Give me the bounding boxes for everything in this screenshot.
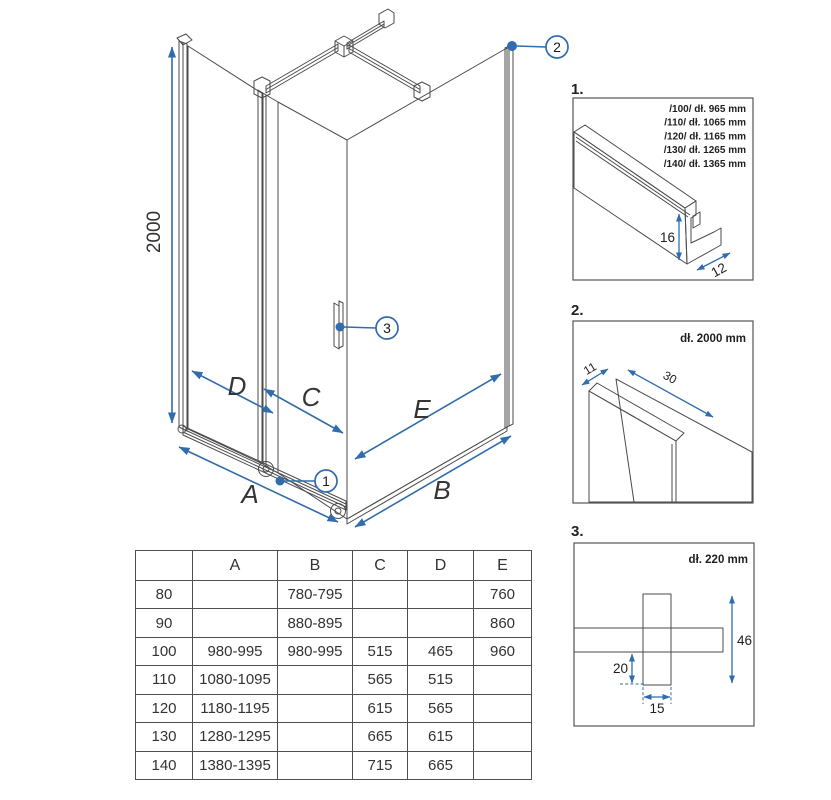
callout-1-dot [276, 477, 285, 486]
detail-1-size-line-3: /130/ dł. 1265 mm [664, 145, 746, 156]
table-header-row: A B C D E [136, 551, 532, 581]
dimension-height-2000: 2000 [144, 47, 172, 423]
table-cell [193, 581, 278, 609]
table-row: 90 880-895 860 [136, 609, 532, 637]
dimension-label-d: D [228, 371, 247, 401]
table-row: 100 980-995 980-995 515 465 960 [136, 637, 532, 665]
detail-2-length-label: dł. 2000 mm [680, 333, 746, 345]
table-cell: 1380-1395 [193, 751, 278, 779]
table-cell [474, 723, 532, 751]
dimension-label-c: C [302, 382, 321, 412]
dimension-label-e: E [413, 394, 431, 424]
table-row: 130 1280-1295 665 615 [136, 723, 532, 751]
detail-panel-2: 2. dł. 2000 mm 11 30 [571, 302, 753, 503]
table-cell: 100 [136, 637, 193, 665]
table-cell [278, 666, 353, 694]
table-cell: 980-995 [193, 637, 278, 665]
detail-1-number: 1. [571, 81, 584, 98]
table-cell [474, 751, 532, 779]
table-cell: 120 [136, 694, 193, 722]
callout-3-number: 3 [383, 320, 391, 336]
table-header-size [136, 551, 193, 581]
table-cell [474, 666, 532, 694]
table-cell: 760 [474, 581, 532, 609]
dimension-e: E [355, 374, 501, 459]
dimension-label-b: B [433, 475, 450, 505]
table-cell [474, 694, 532, 722]
detail-panel-3: 3. dł. 220 mm 46 20 15 [571, 523, 754, 726]
table-header-b: B [278, 551, 353, 581]
callout-1-number: 1 [322, 473, 330, 489]
detail-3-frame [574, 543, 754, 726]
table-cell: 1080-1095 [193, 666, 278, 694]
fixed-glass-strip [266, 95, 278, 473]
dimension-d: D [192, 371, 273, 413]
table-cell [278, 751, 353, 779]
right-wall-profile [505, 44, 513, 428]
right-bottom-profile [347, 427, 507, 524]
detail-3-dim-20-label: 20 [613, 661, 628, 676]
main-isometric-view: 2000 [144, 9, 568, 527]
table-cell: 780-795 [278, 581, 353, 609]
table-cell [193, 609, 278, 637]
table-cell: 140 [136, 751, 193, 779]
detail-1-size-line-2: /120/ dł. 1165 mm [664, 131, 746, 142]
table-header-a: A [193, 551, 278, 581]
callout-2-number: 2 [553, 39, 561, 55]
table-cell [278, 694, 353, 722]
table-row: 140 1380-1395 715 665 [136, 751, 532, 779]
table-cell: 565 [353, 666, 408, 694]
detail-3-number: 3. [571, 523, 584, 540]
table-cell: 1280-1295 [193, 723, 278, 751]
detail-1-size-line-0: /100/ dł. 965 mm [669, 104, 746, 115]
table-row: 120 1180-1195 615 565 [136, 694, 532, 722]
detail-3-length-label: dł. 220 mm [689, 554, 748, 566]
table-cell: 110 [136, 666, 193, 694]
table-cell: 515 [353, 637, 408, 665]
table-cell: 980-995 [278, 637, 353, 665]
wall-bracket [379, 9, 394, 28]
table-cell: 565 [408, 694, 474, 722]
table-cell: 80 [136, 581, 193, 609]
table-cell: 130 [136, 723, 193, 751]
bar-glass-clamp-right [414, 82, 430, 101]
table-cell [408, 609, 474, 637]
detail-3-dim-15-label: 15 [649, 701, 664, 716]
table-row: 80 780-795 760 [136, 581, 532, 609]
table-cell: 665 [353, 723, 408, 751]
dimension-b: B [355, 436, 511, 527]
table-cell: 880-895 [278, 609, 353, 637]
table-cell [408, 581, 474, 609]
size-dimension-table: A B C D E 80 780-795 760 90 880-895 860 … [135, 550, 532, 780]
roller-wheel [331, 504, 346, 519]
table-cell: 665 [408, 751, 474, 779]
table-cell [353, 581, 408, 609]
table-header-d: D [408, 551, 474, 581]
callout-2: 2 [507, 36, 568, 58]
table-cell [278, 723, 353, 751]
table-cell: 615 [353, 694, 408, 722]
detail-2-frame [573, 321, 753, 503]
table-cell: 90 [136, 609, 193, 637]
left-wall-profile [177, 34, 192, 433]
dimension-label-2000: 2000 [144, 211, 165, 253]
detail-1-size-line-1: /110/ dł. 1065 mm [664, 118, 746, 129]
table-row: 110 1080-1095 565 515 [136, 666, 532, 694]
table-cell: 715 [353, 751, 408, 779]
dimension-label-a: A [239, 479, 258, 509]
table-cell: 1180-1195 [193, 694, 278, 722]
table-cell: 960 [474, 637, 532, 665]
table-cell: 515 [408, 666, 474, 694]
detail-1-dim-16-label: 16 [660, 230, 675, 245]
detail-1-size-line-4: /140/ dł. 1365 mm [664, 159, 746, 170]
callout-3: 3 [336, 317, 399, 339]
table-header-e: E [474, 551, 532, 581]
table-cell [353, 609, 408, 637]
table-cell: 465 [408, 637, 474, 665]
detail-panel-1: 1. /100/ dł. 965 mm /110/ dł. 1065 mm /1… [571, 81, 753, 280]
callout-2-dot [507, 41, 517, 51]
callout-3-dot [336, 323, 345, 332]
top-support-bar [254, 9, 430, 101]
table-cell: 860 [474, 609, 532, 637]
table-cell: 615 [408, 723, 474, 751]
table-header-c: C [353, 551, 408, 581]
detail-2-number: 2. [571, 302, 584, 319]
sliding-door-panel [278, 102, 347, 519]
detail-3-dim-46-label: 46 [737, 633, 752, 648]
dimension-c: C [264, 382, 343, 433]
